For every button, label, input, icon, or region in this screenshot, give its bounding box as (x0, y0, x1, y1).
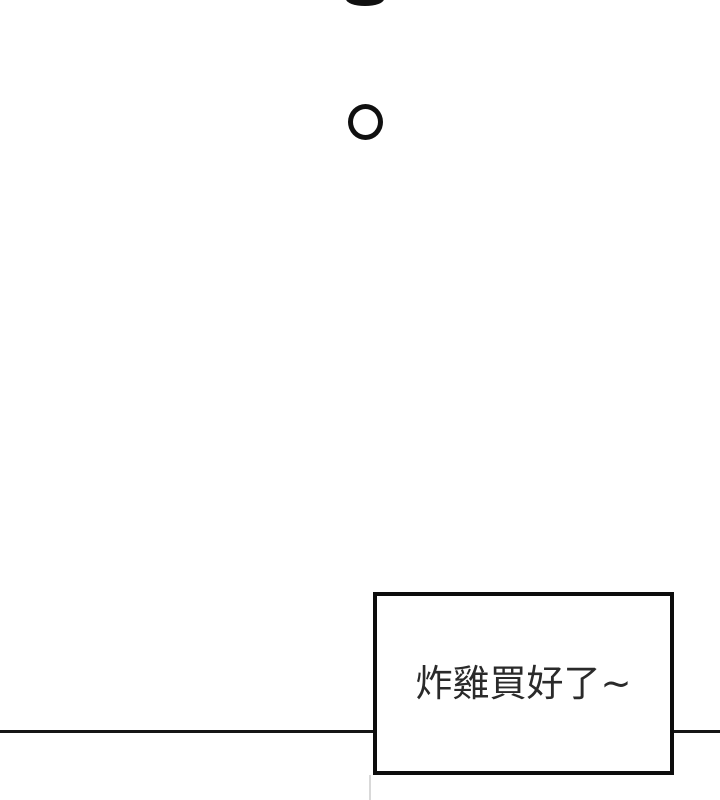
ink-blob-top-icon (346, 0, 384, 6)
speech-bubble: 炸雞買好了~ (373, 592, 674, 775)
panel-border-faint-line (369, 775, 371, 800)
speech-bubble-text: 炸雞買好了~ (415, 665, 631, 702)
comic-page: 炸雞買好了~ (0, 0, 720, 800)
circle-outline-icon (348, 104, 383, 140)
